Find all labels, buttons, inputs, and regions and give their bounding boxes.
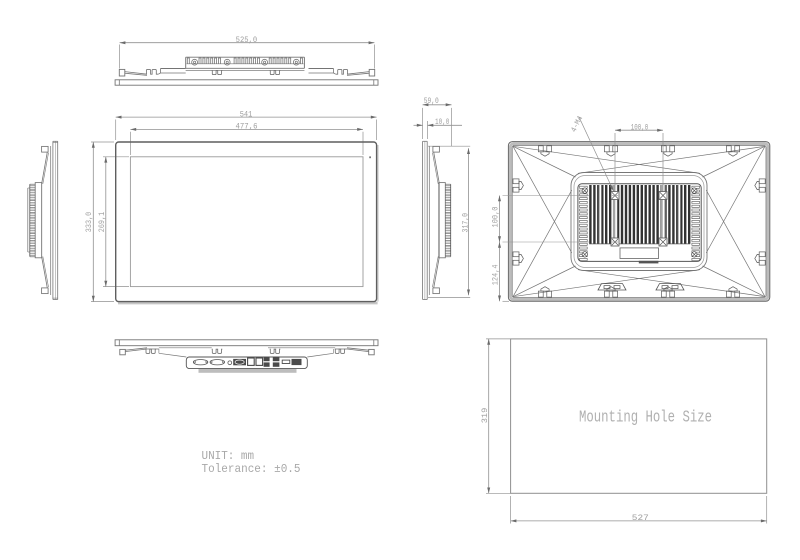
svg-text:541: 541 [240, 110, 253, 119]
svg-text:Tolerance: ±0.5: Tolerance: ±0.5 [202, 462, 301, 476]
svg-text:124,4: 124,4 [492, 264, 501, 285]
svg-text:Mounting Hole Size: Mounting Hole Size [579, 407, 712, 426]
svg-text:317,0: 317,0 [462, 213, 471, 233]
svg-text:UNIT: mm: UNIT: mm [202, 449, 255, 463]
svg-text:525,0: 525,0 [236, 36, 258, 45]
svg-text:319: 319 [481, 408, 490, 424]
svg-text:333,0: 333,0 [85, 212, 94, 233]
svg-text:100,0: 100,0 [492, 206, 501, 227]
svg-text:59,0: 59,0 [424, 97, 439, 106]
svg-text:269,1: 269,1 [98, 212, 107, 233]
svg-text:477,6: 477,6 [236, 123, 258, 132]
svg-text:100,0: 100,0 [631, 123, 649, 132]
svg-text:10,0: 10,0 [435, 118, 450, 127]
svg-text:527: 527 [632, 514, 649, 523]
